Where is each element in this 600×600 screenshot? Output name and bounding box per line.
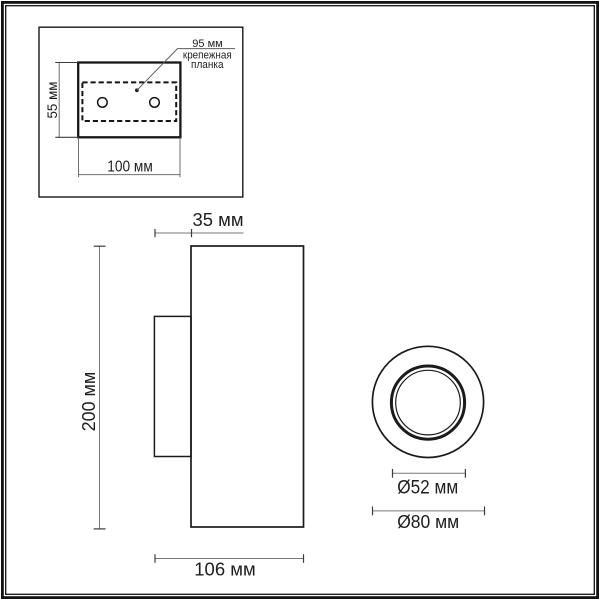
svg-text:106 мм: 106 мм (194, 559, 255, 580)
svg-text:Ø80 мм: Ø80 мм (397, 512, 459, 532)
svg-text:95 мм: 95 мм (192, 38, 222, 50)
svg-text:55 мм: 55 мм (45, 82, 60, 119)
svg-text:35 мм: 35 мм (193, 209, 244, 230)
svg-text:Ø52 мм: Ø52 мм (397, 477, 458, 498)
svg-text:100 мм: 100 мм (107, 159, 153, 176)
svg-text:200 мм: 200 мм (79, 372, 99, 432)
svg-text:планка: планка (191, 59, 224, 71)
